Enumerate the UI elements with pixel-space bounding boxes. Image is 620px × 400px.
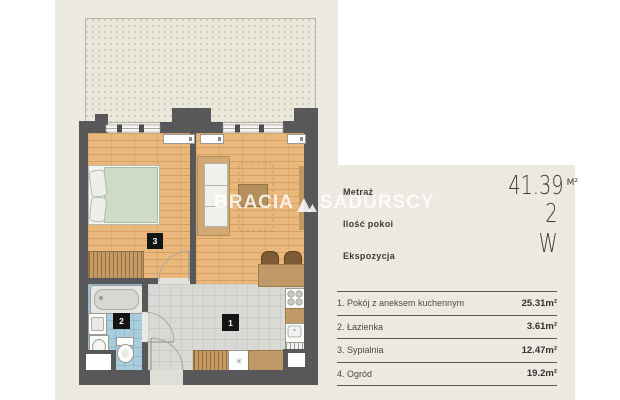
stat-value-area: 41.39 M² <box>438 176 578 196</box>
wall-top-left <box>79 121 108 133</box>
room-name: 1. Pokój z aneksem kuchennym <box>337 298 464 308</box>
brand-right: SADURSCY <box>320 193 435 212</box>
wall-top-left-step <box>95 114 108 122</box>
wall-left <box>79 121 88 385</box>
area-unit: M² <box>567 178 578 188</box>
stat-label-exposure: Ekspozycja <box>343 251 395 261</box>
washing-machine: ✳ <box>228 350 250 372</box>
brand-watermark: BRACIA SADURSCY <box>214 193 435 212</box>
wall-right <box>304 133 318 385</box>
wall-top-center <box>160 122 223 133</box>
rooms-number: 2 <box>546 204 558 224</box>
room-row: 3. Sypialnia 12.47m² <box>337 339 557 363</box>
right-margin <box>575 0 620 400</box>
bedroom-door-threshold <box>158 278 190 284</box>
room-list: 1. Pokój z aneksem kuchennym 25.31m² 2. … <box>337 291 557 386</box>
radiator <box>163 134 195 144</box>
wall-top-right-step <box>294 108 318 122</box>
wall-top-right <box>283 121 318 133</box>
left-margin <box>0 0 55 400</box>
room-area: 3.61m² <box>527 321 557 332</box>
wall-bathroom-lower <box>142 342 148 370</box>
exposure-value: W <box>539 234 558 254</box>
sink-basin <box>91 317 104 331</box>
wall-bathroom-upper <box>142 284 148 312</box>
room-label-living: 1 <box>222 314 239 331</box>
room-label-bathroom: 2 <box>113 313 130 329</box>
niche-bottom-right <box>288 353 305 367</box>
room-name: 3. Sypialnia <box>337 345 384 355</box>
room-row: 1. Pokój z aneksem kuchennym 25.31m² <box>337 292 557 316</box>
stat-label-rooms: Ilość pokoi <box>343 219 393 229</box>
wall-top-center-bay <box>172 108 211 123</box>
wall-bottom <box>79 370 318 385</box>
top-right-blank <box>338 0 575 165</box>
apartment-listing-card: ✳ 1 2 3 <box>0 0 620 400</box>
bed-duvet <box>104 167 158 223</box>
room-row: 2. Łazienka 3.61m² <box>337 316 557 340</box>
entry-wardrobe <box>193 350 230 372</box>
brand-triangles-icon <box>296 197 318 212</box>
area-number: 41.39 <box>509 176 564 196</box>
room-name: 2. Łazienka <box>337 322 383 332</box>
room-area: 19.2m² <box>527 368 557 379</box>
entrance-opening <box>150 370 183 385</box>
radiator <box>287 134 306 144</box>
room-label-bedroom: 3 <box>147 233 163 249</box>
radiator <box>200 134 224 144</box>
fan-icon: ✳ <box>236 357 243 366</box>
toilet-bowl-inner <box>121 349 129 358</box>
bathtub-drain <box>99 296 103 300</box>
dining-table <box>258 264 306 287</box>
brand-left: BRACIA <box>214 193 294 212</box>
wall-divider <box>190 133 196 284</box>
stat-value-rooms: 2 <box>458 204 558 224</box>
wardrobe <box>88 251 144 280</box>
cabinet <box>248 350 286 372</box>
niche-bottom-left <box>86 354 111 370</box>
pillow <box>88 169 107 198</box>
room-row: 4. Ogród 19.2m² <box>337 363 557 387</box>
room-area: 12.47m² <box>522 345 557 356</box>
room-name: 4. Ogród <box>337 369 372 379</box>
window-left <box>106 125 160 133</box>
window-right <box>223 125 283 133</box>
stat-value-exposure: W <box>458 234 558 254</box>
room-area: 25.31m² <box>522 298 557 309</box>
pillow <box>89 196 108 223</box>
